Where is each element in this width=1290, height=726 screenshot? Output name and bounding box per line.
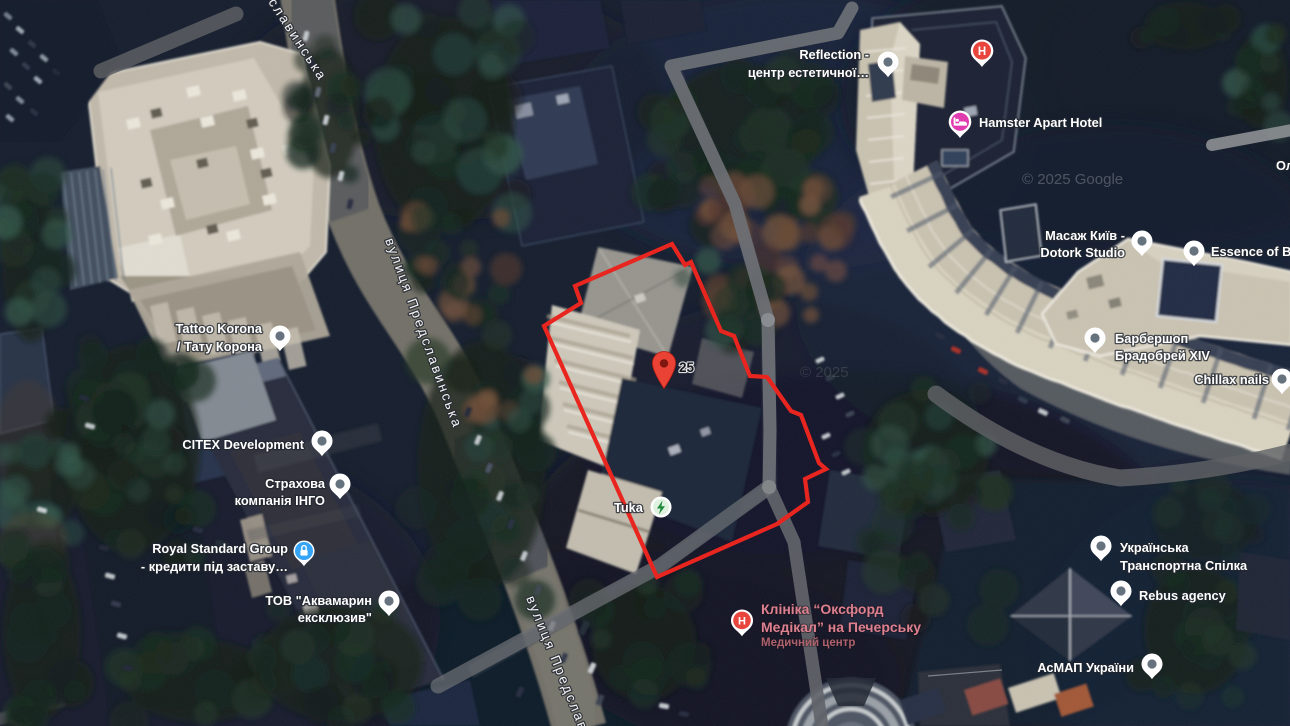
svg-text:H: H — [738, 616, 746, 628]
svg-text:центр естетичної…: центр естетичної… — [748, 65, 869, 80]
svg-text:Брадобрей XIV: Брадобрей XIV — [1115, 348, 1210, 363]
svg-text:Медичний центр: Медичний центр — [761, 637, 855, 649]
svg-text:Rebus agency: Rebus agency — [1139, 588, 1227, 603]
svg-text:H: H — [978, 46, 986, 58]
svg-text:- кредити під заставу…: - кредити під заставу… — [141, 559, 288, 574]
svg-text:Tuka: Tuka — [614, 500, 644, 515]
svg-text:Dotork Studio: Dotork Studio — [1040, 245, 1125, 260]
svg-text:25: 25 — [679, 360, 695, 375]
svg-text:компанія ІНГО: компанія ІНГО — [235, 493, 325, 508]
svg-text:Українська: Українська — [1120, 540, 1190, 555]
svg-text:ТОВ "Аквамарин: ТОВ "Аквамарин — [265, 593, 372, 608]
svg-text:Royal Standard Group: Royal Standard Group — [152, 541, 288, 556]
svg-text:© 2025 Google: © 2025 Google — [1022, 171, 1123, 188]
svg-text:Страхова: Страхова — [265, 476, 326, 491]
svg-text:Медікал” на Печерську: Медікал” на Печерську — [761, 619, 921, 635]
svg-text:Reflection -: Reflection - — [799, 47, 869, 62]
svg-text:Ол: Ол — [1276, 158, 1290, 173]
svg-text:© 2025: © 2025 — [800, 364, 849, 381]
svg-text:Барбершоп: Барбершоп — [1115, 331, 1188, 346]
svg-text:АсМАП України: АсМАП України — [1037, 660, 1134, 675]
svg-text:ексклюзив": ексклюзив" — [298, 610, 372, 625]
svg-text:Chillax nails: Chillax nails — [1194, 372, 1269, 387]
svg-text:Клініка “Оксфорд: Клініка “Оксфорд — [761, 601, 884, 617]
svg-text:CITEX Development: CITEX Development — [182, 437, 304, 452]
svg-text:Транспортна Спілка: Транспортна Спілка — [1120, 558, 1248, 573]
svg-text:/ Тату Корона: / Тату Корона — [177, 339, 263, 354]
svg-text:Hamster Apart Hotel: Hamster Apart Hotel — [979, 115, 1102, 130]
svg-text:Масаж Київ -: Масаж Київ - — [1045, 228, 1125, 243]
svg-text:Tattoo Korona: Tattoo Korona — [176, 321, 263, 336]
svg-text:Essence of Beauty: Essence of Beauty — [1211, 244, 1290, 259]
